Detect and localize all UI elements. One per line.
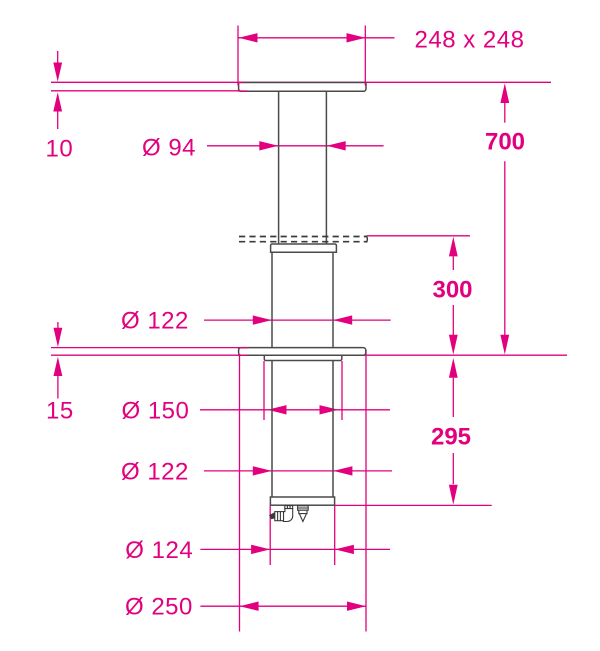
svg-text:Ø 250: Ø 250 bbox=[125, 594, 193, 621]
svg-text:Ø 122: Ø 122 bbox=[121, 458, 189, 485]
svg-text:Ø 122: Ø 122 bbox=[121, 308, 189, 335]
svg-text:Ø 124: Ø 124 bbox=[125, 537, 193, 564]
svg-text:15: 15 bbox=[46, 398, 74, 425]
svg-text:248 x 248: 248 x 248 bbox=[415, 26, 525, 53]
svg-text:Ø 150: Ø 150 bbox=[122, 397, 190, 424]
svg-text:700: 700 bbox=[485, 128, 525, 155]
svg-text:300: 300 bbox=[432, 277, 472, 304]
svg-text:10: 10 bbox=[46, 135, 74, 162]
svg-text:295: 295 bbox=[431, 424, 471, 451]
svg-text:Ø 94: Ø 94 bbox=[142, 134, 196, 161]
